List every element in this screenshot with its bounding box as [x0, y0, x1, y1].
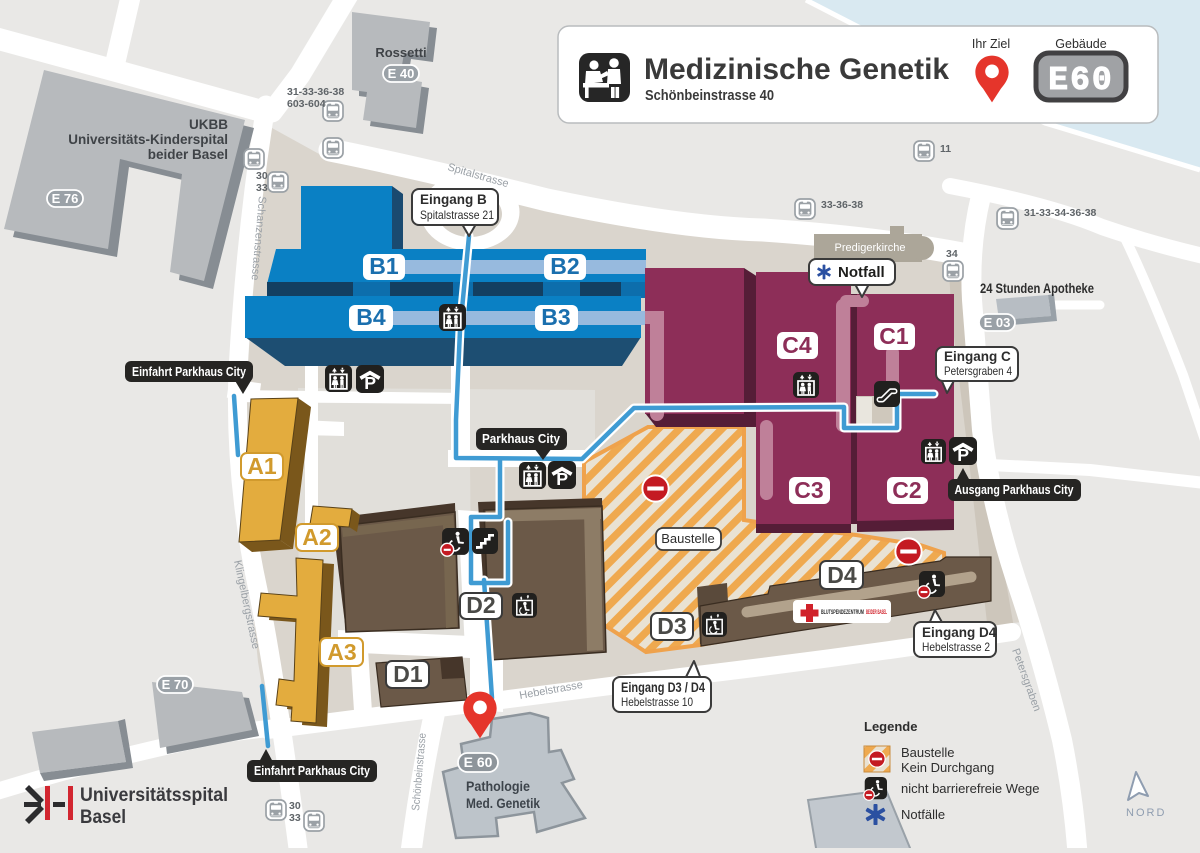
- svg-text:Notfall: Notfall: [838, 264, 885, 281]
- svg-text:E 76: E 76: [52, 191, 79, 206]
- svg-text:Eingang B: Eingang B: [420, 192, 487, 207]
- svg-text:11: 11: [940, 143, 951, 155]
- svg-text:Pathologie: Pathologie: [466, 778, 530, 794]
- svg-text:31-33-34-36-38: 31-33-34-36-38: [1024, 207, 1097, 219]
- svg-text:Notfälle: Notfälle: [901, 807, 945, 822]
- svg-text:33: 33: [256, 182, 268, 194]
- svg-text:D4: D4: [827, 562, 857, 588]
- svg-text:Ausgang Parkhaus City: Ausgang Parkhaus City: [955, 482, 1075, 497]
- svg-text:Ihr Ziel: Ihr Ziel: [972, 37, 1010, 51]
- svg-text:Medizinische Genetik: Medizinische Genetik: [644, 53, 949, 86]
- svg-text:Universitätsspital: Universitätsspital: [80, 784, 228, 806]
- svg-text:Kein Durchgang: Kein Durchgang: [901, 760, 994, 775]
- svg-text:Rossetti: Rossetti: [375, 45, 426, 60]
- svg-text:UKBB: UKBB: [189, 117, 228, 132]
- svg-text:24 Stunden Apotheke: 24 Stunden Apotheke: [980, 280, 1094, 296]
- svg-text:B2: B2: [550, 253, 579, 279]
- svg-text:E 03: E 03: [984, 315, 1011, 330]
- svg-text:30: 30: [289, 800, 301, 812]
- svg-text:C4: C4: [782, 332, 812, 358]
- svg-text:C3: C3: [794, 477, 823, 503]
- svg-text:Legende: Legende: [864, 719, 917, 734]
- svg-text:BEIDER BASEL: BEIDER BASEL: [866, 610, 887, 616]
- svg-text:A2: A2: [302, 524, 331, 550]
- svg-text:33: 33: [289, 812, 301, 824]
- svg-text:E 60: E 60: [464, 754, 493, 770]
- svg-text:nicht barrierefreie Wege: nicht barrierefreie Wege: [901, 781, 1040, 796]
- svg-text:Med. Genetik: Med. Genetik: [466, 795, 540, 811]
- svg-text:34: 34: [946, 248, 958, 260]
- svg-text:B1: B1: [369, 253, 399, 279]
- svg-text:E 40: E 40: [388, 66, 415, 81]
- svg-text:Baustelle: Baustelle: [901, 745, 954, 760]
- svg-text:603-604: 603-604: [287, 98, 326, 110]
- svg-text:D2: D2: [466, 592, 495, 618]
- svg-text:Gebäude: Gebäude: [1055, 37, 1106, 51]
- svg-text:C2: C2: [892, 477, 921, 503]
- svg-text:Eingang D4: Eingang D4: [922, 625, 997, 640]
- svg-text:33-36-38: 33-36-38: [821, 199, 863, 211]
- svg-text:Einfahrt Parkhaus City: Einfahrt Parkhaus City: [254, 763, 371, 778]
- svg-text:beider Basel: beider Basel: [148, 147, 228, 162]
- svg-text:BLUTSPENDEZENTRUM: BLUTSPENDEZENTRUM: [821, 610, 864, 616]
- svg-text:30: 30: [256, 170, 268, 182]
- svg-text:Parkhaus City: Parkhaus City: [482, 431, 561, 446]
- svg-text:B3: B3: [541, 304, 570, 330]
- svg-text:Schönbeinstrasse 40: Schönbeinstrasse 40: [645, 87, 774, 104]
- svg-text:Basel: Basel: [80, 806, 126, 828]
- svg-text:D3: D3: [657, 613, 686, 639]
- svg-text:D1: D1: [393, 661, 423, 687]
- svg-text:E 70: E 70: [162, 677, 189, 692]
- svg-text:Hebelstrasse 2: Hebelstrasse 2: [922, 640, 990, 654]
- svg-text:NORD: NORD: [1126, 807, 1166, 819]
- svg-text:C1: C1: [879, 323, 909, 349]
- svg-text:31-33-36-38: 31-33-36-38: [287, 86, 344, 98]
- svg-text:Petersgraben 4: Petersgraben 4: [944, 364, 1012, 378]
- svg-text:Predigerkirche: Predigerkirche: [835, 242, 906, 254]
- svg-text:Baustelle: Baustelle: [661, 531, 714, 546]
- svg-text:Eingang C: Eingang C: [944, 349, 1011, 364]
- svg-text:Hebelstrasse 10: Hebelstrasse 10: [621, 695, 693, 709]
- svg-text:Einfahrt Parkhaus City: Einfahrt Parkhaus City: [132, 364, 247, 379]
- svg-text:B4: B4: [356, 304, 386, 330]
- svg-text:E60: E60: [1048, 62, 1113, 99]
- svg-text:A3: A3: [327, 639, 356, 665]
- svg-text:A1: A1: [247, 453, 277, 479]
- svg-text:Universitäts-Kinderspital: Universitäts-Kinderspital: [68, 132, 228, 147]
- svg-text:Spitalstrasse 21: Spitalstrasse 21: [420, 208, 494, 222]
- svg-text:Eingang D3 / D4: Eingang D3 / D4: [621, 680, 705, 695]
